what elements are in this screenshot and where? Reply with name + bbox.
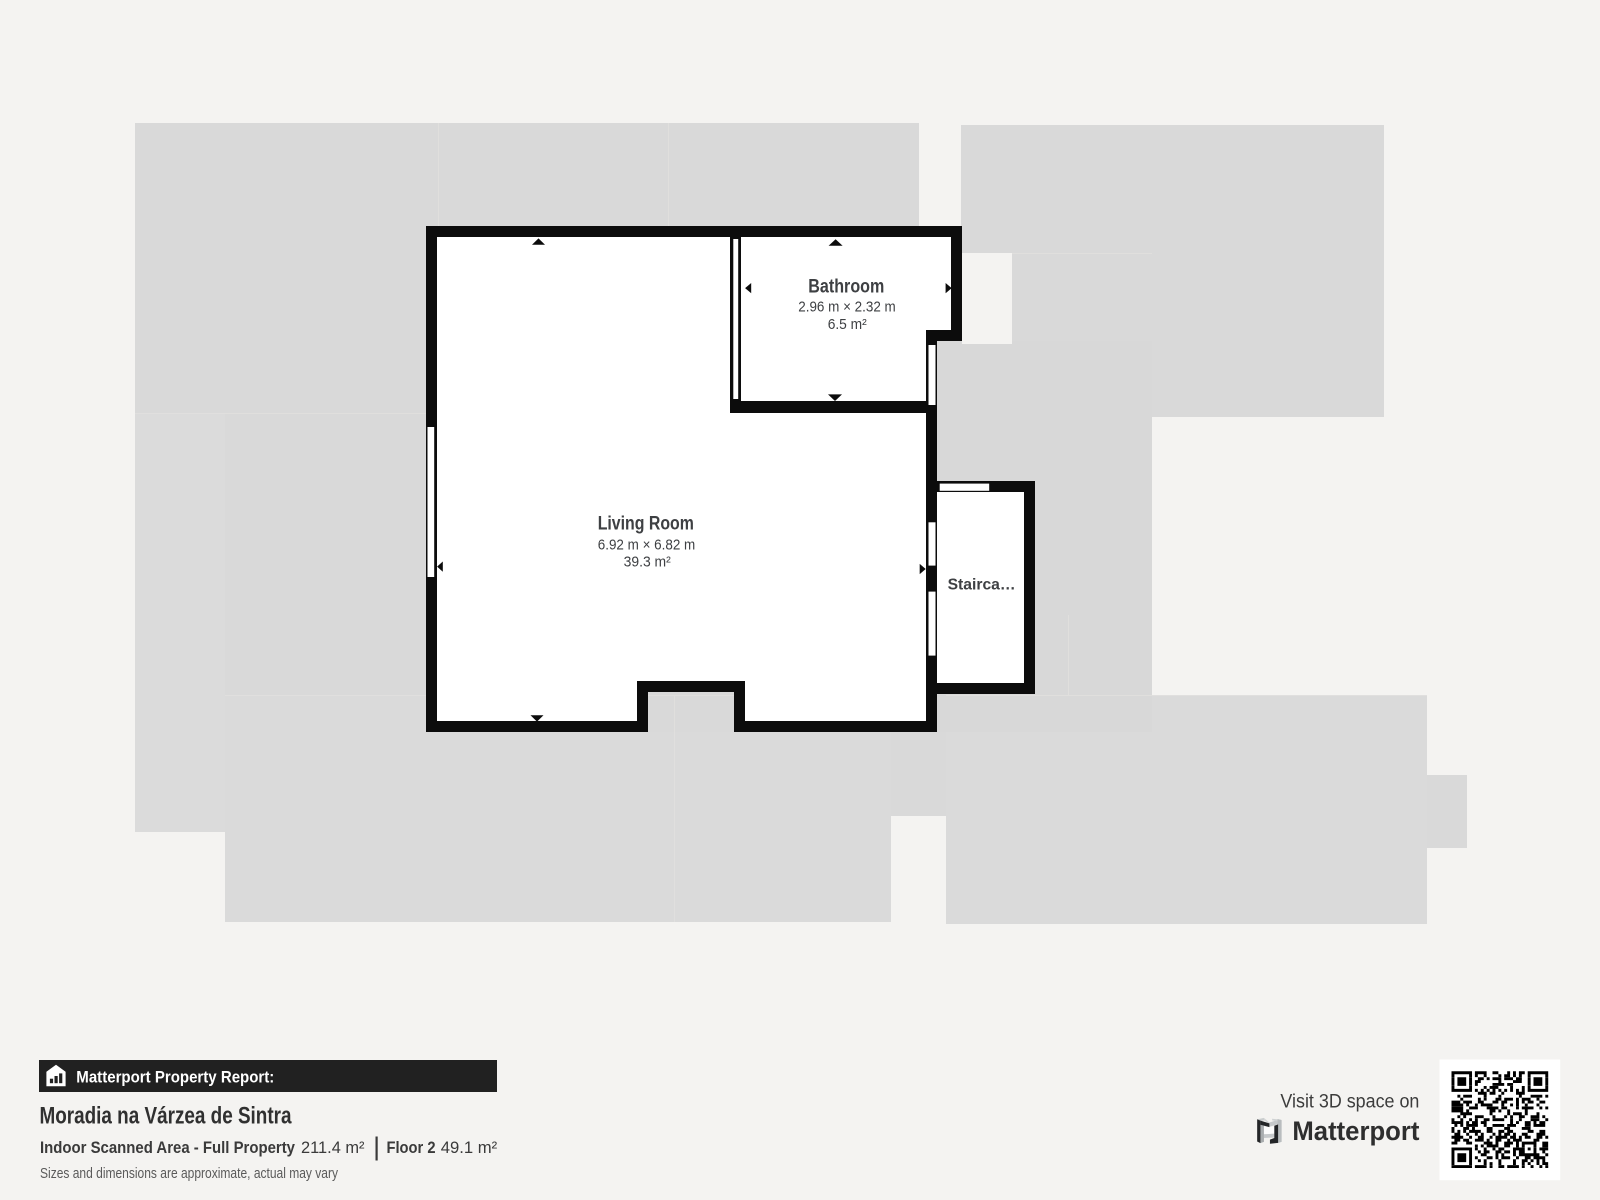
svg-text:6.92 m × 6.82 m: 6.92 m × 6.82 m: [598, 538, 696, 554]
svg-text:6.5 m²: 6.5 m²: [828, 317, 867, 333]
svg-text:Stairca…: Stairca…: [948, 576, 1016, 593]
svg-text:39.3 m²: 39.3 m²: [624, 555, 671, 571]
svg-text:Bathroom: Bathroom: [808, 276, 884, 297]
svg-text:2.96 m × 2.32 m: 2.96 m × 2.32 m: [798, 299, 896, 315]
svg-text:Moradia na Várzea de Sintra: Moradia na Várzea de Sintra: [40, 1103, 293, 1130]
svg-text:49.1 m²: 49.1 m²: [441, 1138, 498, 1157]
svg-text:Visit 3D space on: Visit 3D space on: [1280, 1090, 1419, 1112]
svg-text:Indoor Scanned Area - Full Pro: Indoor Scanned Area - Full Property: [40, 1138, 296, 1157]
svg-text:211.4 m²: 211.4 m²: [301, 1138, 365, 1157]
svg-text:Matterport Property Report:: Matterport Property Report:: [76, 1068, 274, 1087]
svg-text:Living Room: Living Room: [598, 513, 694, 534]
svg-text:Floor 2: Floor 2: [387, 1138, 436, 1157]
svg-text:Sizes and dimensions are appro: Sizes and dimensions are approximate, ac…: [40, 1166, 339, 1182]
svg-text:Matterport: Matterport: [1292, 1116, 1419, 1146]
